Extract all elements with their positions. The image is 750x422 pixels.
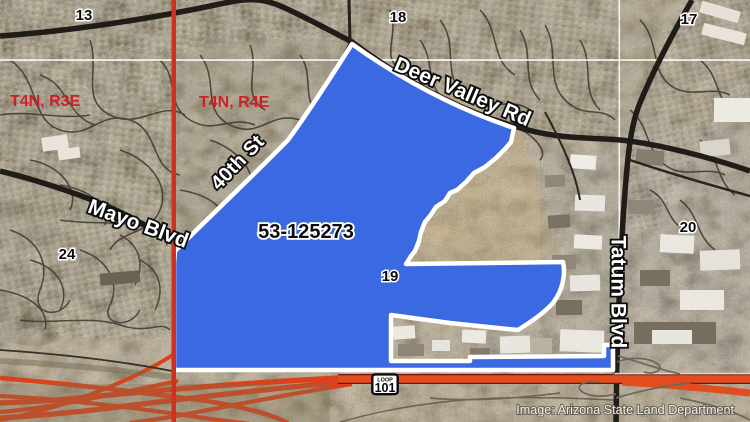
svg-text:Image: Arizona State Land Depa: Image: Arizona State Land Department [516, 403, 734, 417]
svg-text:17: 17 [681, 11, 698, 28]
svg-text:53-125273: 53-125273 [258, 221, 354, 243]
svg-text:13: 13 [76, 7, 93, 24]
svg-text:18: 18 [390, 9, 407, 26]
svg-text:101: 101 [375, 381, 396, 395]
svg-text:Tatum Blvd: Tatum Blvd [607, 236, 630, 349]
svg-text:T4N, R3E: T4N, R3E [10, 93, 81, 110]
svg-text:20: 20 [680, 219, 697, 236]
svg-text:24: 24 [59, 246, 76, 263]
svg-text:T4N, R4E: T4N, R4E [199, 94, 270, 111]
svg-text:19: 19 [382, 268, 399, 285]
